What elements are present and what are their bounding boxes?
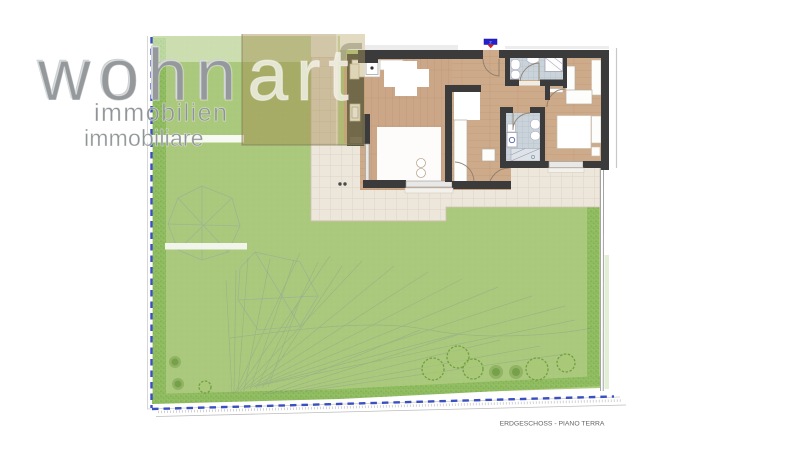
svg-text:immobiliare: immobiliare bbox=[84, 125, 204, 151]
svg-text:immobilien: immobilien bbox=[94, 99, 228, 127]
svg-text:ERDGESCHOSS - PIANO TERRA: ERDGESCHOSS - PIANO TERRA bbox=[500, 421, 605, 428]
